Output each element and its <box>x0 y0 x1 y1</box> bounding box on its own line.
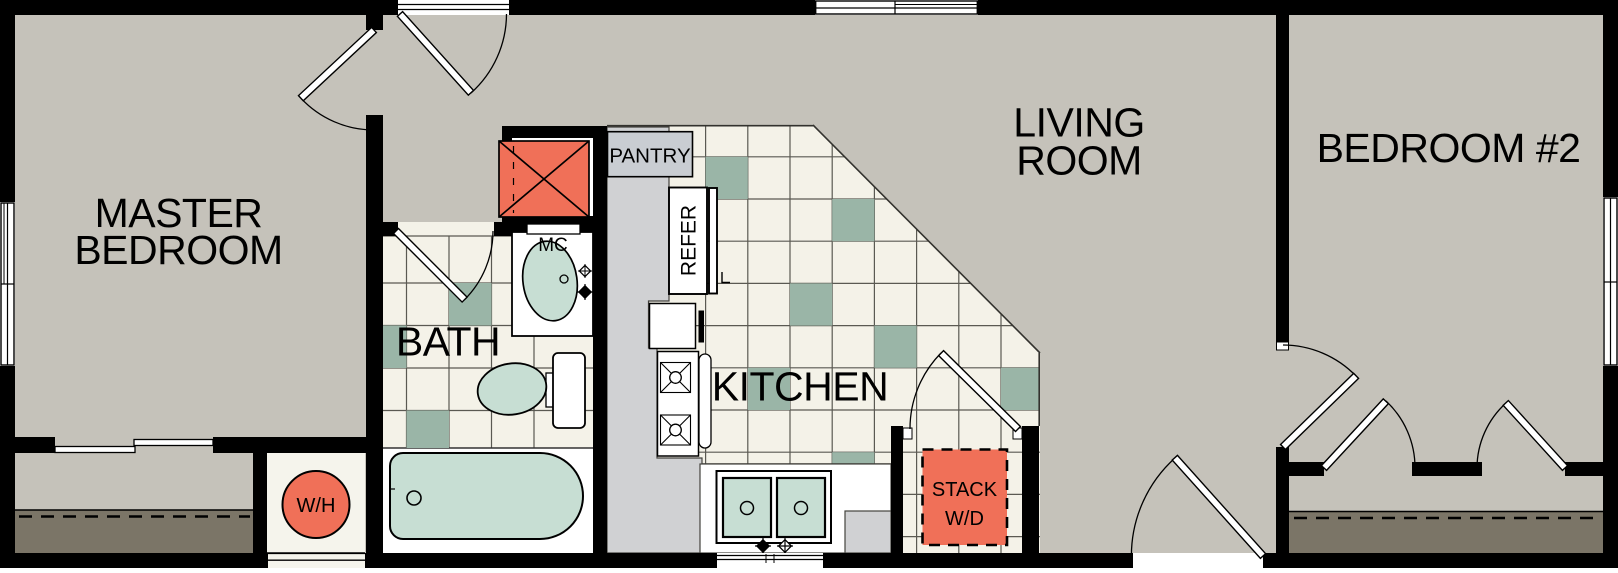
svg-text:W/H: W/H <box>297 495 336 517</box>
svg-text:KITCHEN: KITCHEN <box>712 364 888 410</box>
svg-text:ROOM: ROOM <box>1016 138 1142 184</box>
svg-text:STACK: STACK <box>932 479 998 501</box>
svg-text:W/D: W/D <box>945 508 984 530</box>
svg-text:BEDROOM: BEDROOM <box>74 227 282 273</box>
svg-text:BEDROOM #2: BEDROOM #2 <box>1317 125 1581 171</box>
svg-text:BATH: BATH <box>396 319 500 365</box>
svg-text:MC: MC <box>538 235 568 256</box>
svg-text:REFER: REFER <box>678 205 701 276</box>
svg-text:PANTRY: PANTRY <box>609 145 691 168</box>
